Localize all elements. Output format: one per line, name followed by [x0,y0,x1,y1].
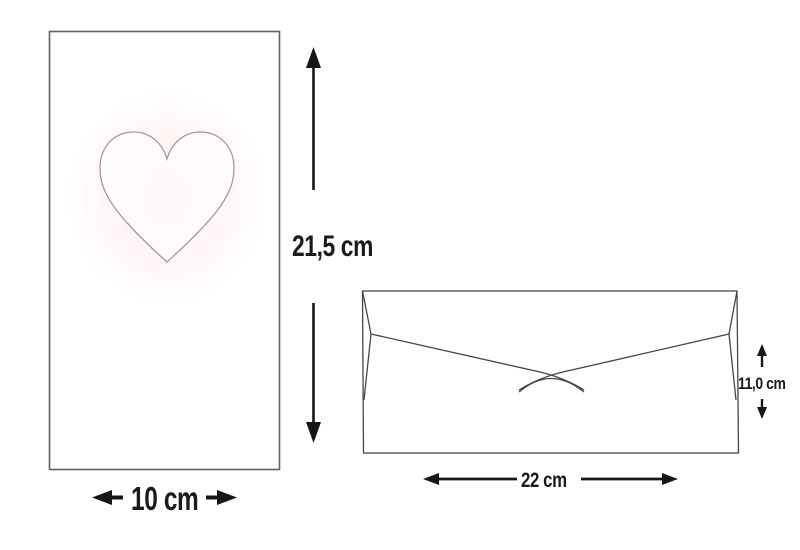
diagram-svg [0,0,800,550]
width-arrow-left-head-icon [92,490,112,505]
greeting-card [50,32,280,470]
envelope-height-label: 11,0 cm [738,375,786,392]
height-arrow-down-head-icon [306,422,321,443]
envelope-width-arrow-left-head-icon [423,473,439,485]
height-arrow-up-head-icon [306,47,321,68]
card-height-label: 21,5 cm [292,232,373,262]
envelope [363,291,739,453]
envelope-height-arrow-up-head-icon [757,344,767,356]
diagram-canvas: 21,5 cm 10 cm 22 cm 11,0 cm [0,0,800,550]
width-arrow-right-head-icon [217,490,237,505]
card-width-label: 10 cm [131,482,198,515]
envelope-outline [363,291,739,453]
envelope-width-label: 22 cm [521,470,567,491]
envelope-width-arrow-right-head-icon [662,473,678,485]
envelope-height-arrow-down-head-icon [757,407,767,419]
